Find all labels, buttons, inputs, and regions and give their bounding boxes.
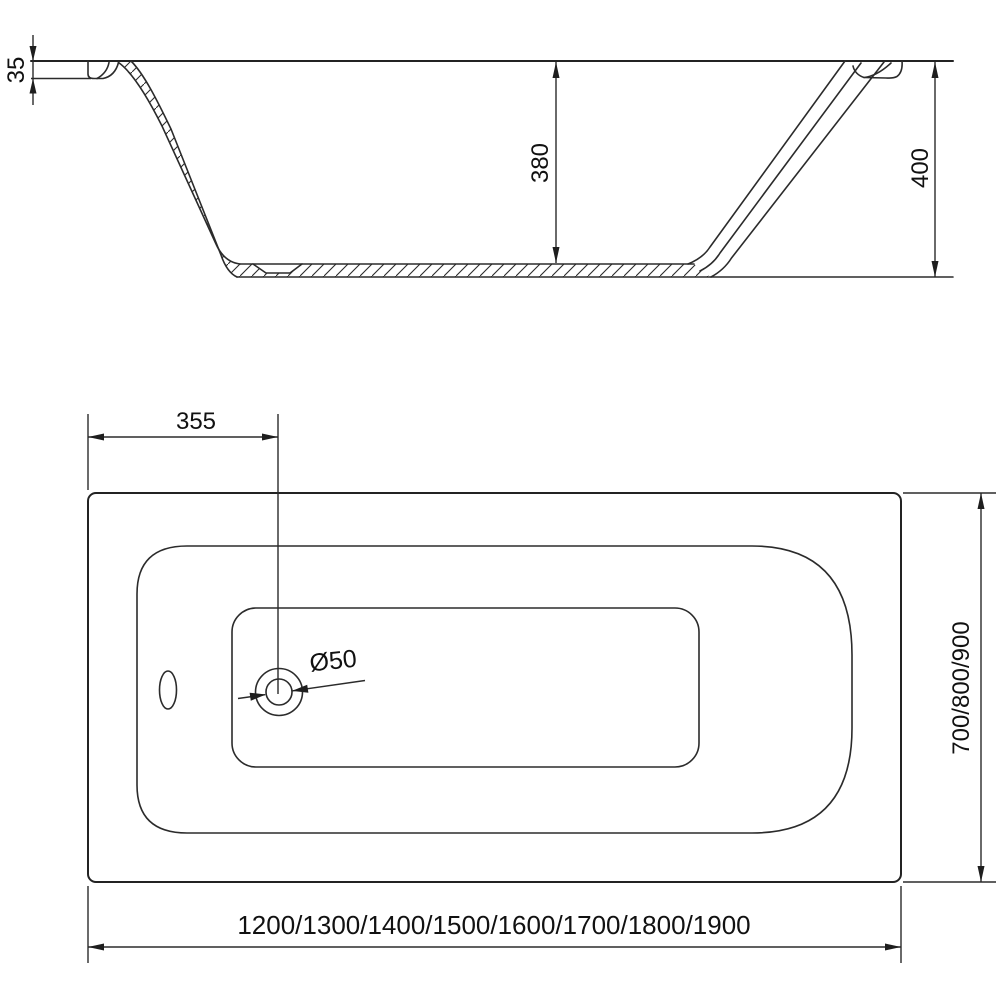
- dim-overall-height-label: 400: [907, 148, 934, 188]
- dim-drain-offset-label: 355: [176, 408, 216, 435]
- dim-inner-depth-label: 380: [527, 143, 554, 183]
- dim-width-options-label: 700/800/900: [948, 621, 975, 754]
- dim-drain-diameter-label: Ø50: [308, 645, 358, 678]
- bathtub-technical-drawing-page: 35 380 400: [0, 0, 1000, 1000]
- background: [0, 0, 1000, 1000]
- dim-rim-thickness-label: 35: [3, 57, 30, 84]
- dim-length-options-label: 1200/1300/1400/1500/1600/1700/1800/1900: [237, 910, 750, 940]
- technical-drawing-canvas: 35 380 400: [0, 0, 1000, 1000]
